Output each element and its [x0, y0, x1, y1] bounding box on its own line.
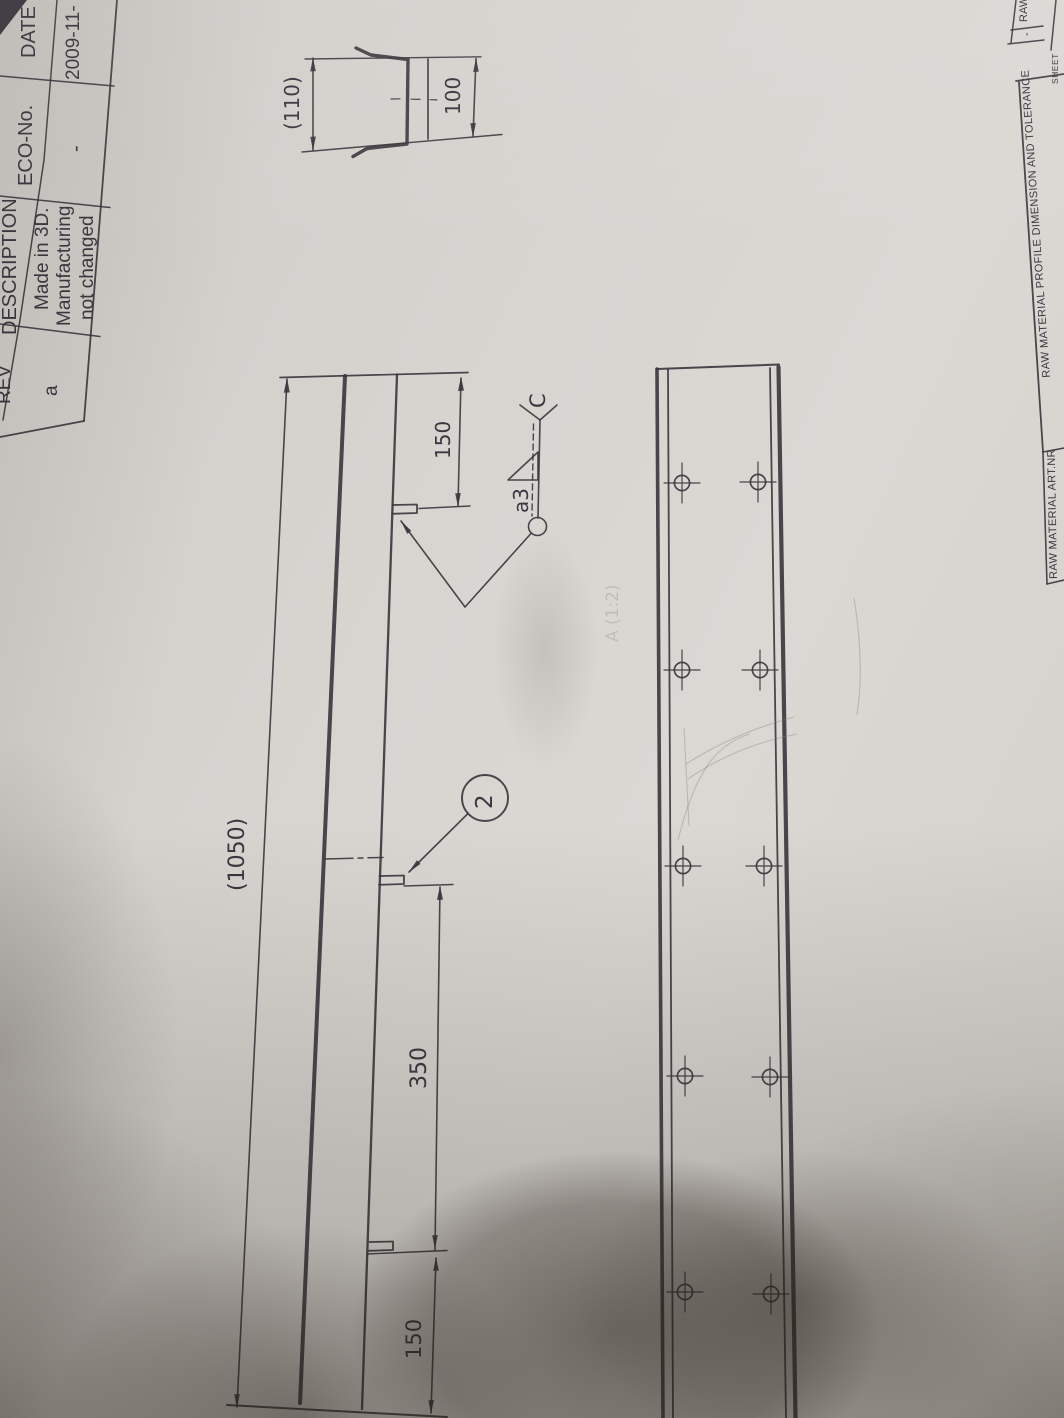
- description-line-3: not changed: [78, 215, 97, 320]
- beam-inner-edge-right: [770, 368, 786, 1418]
- side-view-dimensions: [234, 377, 470, 1414]
- beam-bottom-edge: [227, 1405, 447, 1417]
- hole: [740, 462, 776, 502]
- beam-inner-edge-left: [668, 370, 673, 1418]
- eco-no-value: -: [66, 145, 86, 152]
- strip-cell-line: [1051, 0, 1056, 50]
- arrowhead: [458, 377, 464, 391]
- dim-line-150-top: [458, 378, 461, 506]
- detail-c-label: C: [528, 393, 549, 408]
- description-header: DESCRIPTION: [0, 198, 20, 335]
- rev-value: a: [42, 385, 61, 396]
- arrowhead: [428, 1400, 434, 1414]
- beam-break-centerline: [325, 858, 383, 860]
- description-line-1: Made in 3D.: [33, 208, 52, 310]
- hole: [752, 1057, 788, 1097]
- balloon-number: 2: [474, 794, 497, 809]
- rev-table-bottom-border: [0, 421, 84, 437]
- hole-pattern: [664, 462, 789, 1314]
- weld-size-label: a3: [511, 488, 531, 513]
- pencil-note: A (1:2): [605, 584, 622, 642]
- arrowhead: [455, 493, 461, 507]
- strip-raw-label: RAW: [1019, 0, 1030, 22]
- arrowhead: [310, 137, 316, 151]
- profile-center-line: [391, 99, 437, 100]
- photographed-engineering-drawing: REV DESCRIPTION ECO-No. DATE a Made in 3…: [0, 0, 1064, 1418]
- eco-no-header: ECO-No.: [16, 105, 36, 186]
- date-header: DATE: [19, 6, 39, 58]
- description-line-2: Manufacturing: [55, 206, 74, 326]
- welded-tab-middle: [379, 876, 404, 885]
- welded-tab-bottom: [369, 1242, 393, 1251]
- arrowhead: [470, 123, 476, 137]
- strip-cell-line: [1008, 40, 1044, 44]
- channel-profile-outline: [353, 48, 408, 157]
- profile-section-view: [302, 48, 502, 157]
- strip-cell-line: [1011, 0, 1016, 43]
- rev-table-row-line-1: [0, 76, 114, 86]
- side-view: [227, 373, 468, 1418]
- strip-raw-value: -: [1022, 32, 1033, 36]
- beam-end-edge: [657, 365, 779, 370]
- extension-line: [404, 885, 453, 887]
- arrowhead: [432, 1235, 438, 1249]
- arrowhead: [437, 886, 443, 900]
- balloon-callout: [409, 775, 508, 872]
- date-value: 2009-11-: [64, 5, 83, 80]
- top-view: [657, 365, 796, 1418]
- dim-150-bottom: 150: [404, 1319, 425, 1359]
- welded-tab-top: [392, 505, 417, 514]
- beam-outer-edge-left: [657, 369, 663, 1418]
- dim-overall-length: (1050): [227, 818, 249, 891]
- strip-art-nr-label: RAW MATERIAL ART.NR: [1047, 449, 1060, 579]
- dim-350: 350: [409, 1047, 431, 1089]
- arrowhead: [284, 378, 290, 393]
- dim-150-top: 150: [433, 421, 453, 459]
- dim-line-1050: [237, 379, 287, 1407]
- weld-symbol: [401, 405, 557, 607]
- hole: [742, 650, 778, 690]
- strip-sheet-label: SHEET: [1051, 53, 1060, 84]
- hole: [667, 1056, 703, 1096]
- dim-110: (110): [282, 76, 302, 130]
- rev-header: REV: [0, 365, 14, 404]
- beam-outer-edge-right: [779, 367, 796, 1418]
- beam-left-edge: [300, 376, 345, 1403]
- dim-line-350: [435, 887, 440, 1250]
- pencil-marks: [678, 598, 860, 840]
- extension-line: [419, 506, 470, 509]
- dim-line-150-bottom: [431, 1258, 436, 1413]
- drawing-linework: [0, 0, 1064, 1418]
- rev-table-right-border: [84, 0, 117, 421]
- artnr-box-bottom: [1047, 580, 1064, 584]
- arrowhead: [473, 58, 479, 72]
- strip-cell-line: [1011, 26, 1043, 30]
- arrowhead: [433, 1257, 439, 1271]
- dim-100: 100: [443, 77, 463, 115]
- weld-leader: [401, 521, 531, 607]
- beam-top-edge: [280, 373, 468, 378]
